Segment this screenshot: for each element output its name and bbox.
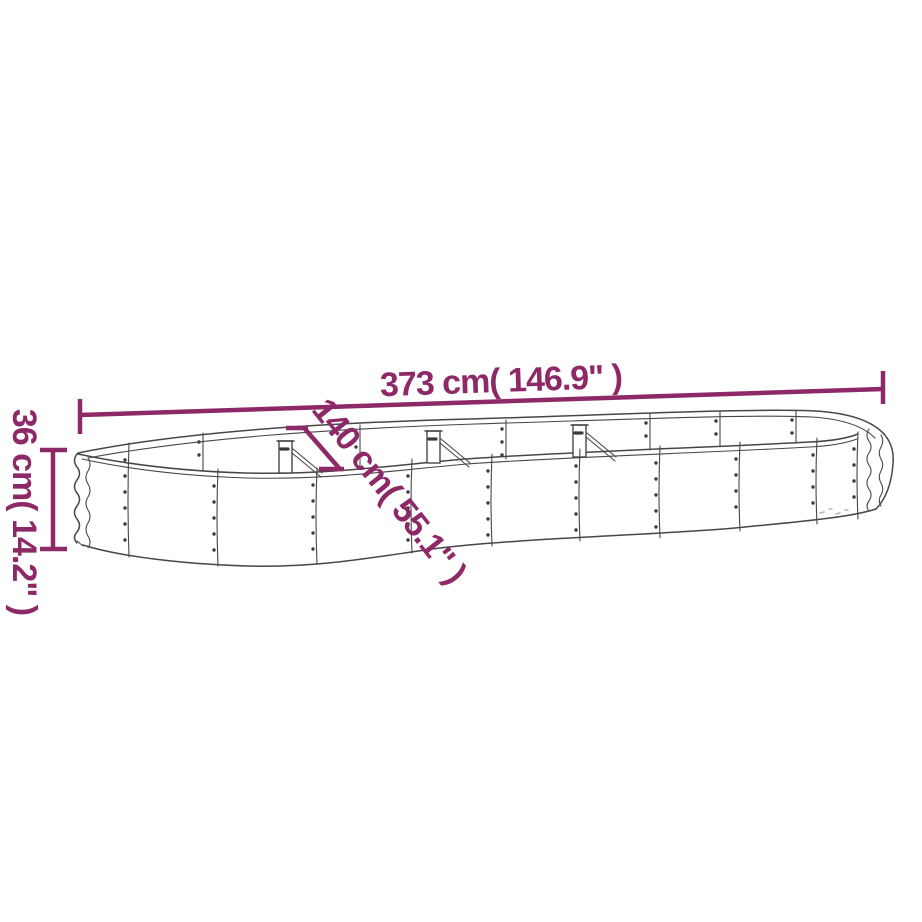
rivet (852, 447, 855, 450)
rivet (644, 434, 647, 437)
diagonal-brace (587, 433, 616, 457)
rivet (734, 489, 737, 492)
right-end-corrugation (867, 429, 871, 511)
rivet (486, 501, 489, 504)
front-panel-seam (739, 442, 740, 531)
rivet (734, 457, 737, 460)
left-end-bottom-joint (77, 541, 83, 546)
rivet (574, 496, 577, 499)
front-panel-seam (857, 432, 858, 519)
left-end-corrugation (86, 458, 90, 548)
front-panel-seam (816, 438, 817, 524)
rivet (212, 484, 215, 487)
height-dimension-line (40, 450, 67, 549)
rivet (852, 479, 855, 482)
front-panel-seam (128, 443, 129, 557)
rivet (486, 517, 489, 520)
rivet (123, 506, 126, 509)
front-panel-seam (659, 446, 660, 538)
front-panel-seam (316, 468, 317, 564)
rivet (811, 453, 814, 456)
front-wall-bottom-edge (83, 509, 876, 566)
rivet (714, 432, 717, 435)
diagonal-brace (293, 449, 322, 473)
rivet (311, 547, 314, 550)
rivet (811, 501, 814, 504)
rivet (654, 509, 657, 512)
rivet (734, 473, 737, 476)
rivet (574, 464, 577, 467)
right-end-outer-edge (876, 434, 893, 509)
rivet (654, 525, 657, 528)
height-dimension-label: 36 cm( 14.2" ) (7, 409, 41, 615)
rivet (486, 469, 489, 472)
front-panel-seam (217, 469, 218, 566)
front-wall-top-edge (78, 434, 858, 473)
diagram-canvas (0, 0, 922, 922)
planter-drawing (75, 410, 894, 566)
rivet (644, 421, 647, 424)
rivet (123, 490, 126, 493)
panel-seams-and-details (75, 411, 883, 566)
rivet (212, 548, 215, 551)
rivet (811, 469, 814, 472)
diagonal-brace (440, 443, 469, 467)
rivet (654, 461, 657, 464)
rivet (311, 531, 314, 534)
rivet (574, 480, 577, 483)
rivet (197, 453, 200, 456)
support-post (427, 431, 440, 463)
rivet (811, 485, 814, 488)
rivet (197, 440, 200, 443)
rivet (574, 512, 577, 515)
right-end-corrugation (879, 435, 883, 506)
rivet (486, 485, 489, 488)
rivet (654, 493, 657, 496)
rivet (790, 431, 793, 434)
rivet (311, 499, 314, 502)
rivet (852, 495, 855, 498)
rivet (486, 533, 489, 536)
rivet (212, 532, 215, 535)
rivet (734, 505, 737, 508)
rivet (212, 516, 215, 519)
rivet (311, 515, 314, 518)
front-panel-seam (579, 449, 580, 541)
product-dimension-diagram: 373 cm( 146.9" ) 140 cm( 55.1" ) 36 cm( … (0, 0, 922, 922)
rivet (500, 453, 503, 456)
support-post (279, 441, 292, 473)
rivet (123, 538, 126, 541)
rivet (311, 483, 314, 486)
rivet (790, 418, 793, 421)
rivet (212, 500, 215, 503)
rivet (714, 419, 717, 422)
rivet (123, 474, 126, 477)
rivet (123, 458, 126, 461)
rivet (500, 440, 503, 443)
left-end-corrugation (75, 454, 80, 543)
rim-inner-lip (88, 416, 875, 458)
rivet (406, 474, 409, 477)
rivet (654, 477, 657, 480)
rivet (574, 528, 577, 531)
length-dimension-label: 373 cm( 146.9" ) (379, 360, 622, 402)
rivet (500, 427, 503, 430)
front-panel-seam (491, 454, 492, 546)
surface-marks (820, 509, 853, 515)
rivet (123, 522, 126, 525)
rivet (852, 463, 855, 466)
